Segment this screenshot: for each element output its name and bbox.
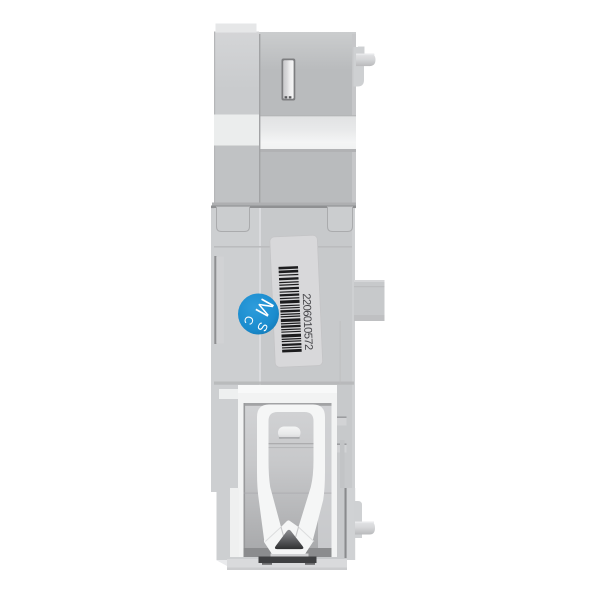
svg-text:2206010572: 2206010572 [300, 293, 314, 350]
